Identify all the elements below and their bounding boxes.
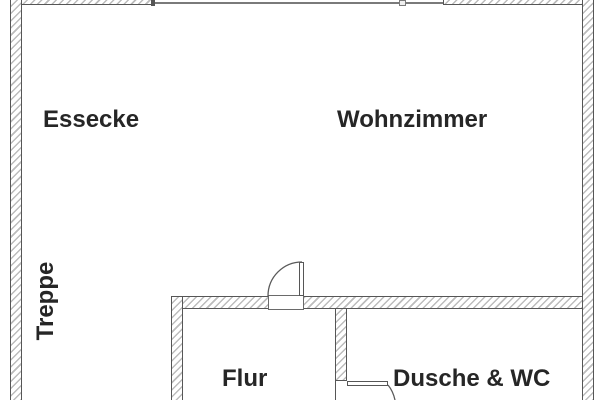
wall-exterior-top-right-segment (443, 0, 582, 5)
room-label-flur: Flur (222, 366, 267, 392)
wall-flur-left (171, 296, 183, 400)
floorplan-canvas: Essecke Wohnzimmer Treppe Flur Dusche & … (0, 0, 600, 400)
room-label-treppe: Treppe (33, 262, 59, 341)
room-label-dusche-wc: Dusche & WC (393, 366, 550, 392)
wall-interior-horizontal (183, 296, 582, 309)
room-label-essecke: Essecke (43, 107, 139, 133)
wall-exterior-top-left-segment (22, 0, 152, 5)
wall-exterior-left (10, 0, 22, 400)
door-flur-arc-icon (268, 262, 302, 296)
wall-flur-dusche-divider (335, 309, 347, 381)
room-label-wohnzimmer: Wohnzimmer (337, 107, 487, 133)
wall-divider-door-jamb (335, 381, 347, 400)
door-dusche-leaf (347, 381, 388, 386)
window-mullion (399, 0, 406, 6)
door-flur-leaf (299, 262, 304, 296)
wall-exterior-right (582, 0, 594, 400)
door-flur-threshold (268, 295, 304, 310)
door-swing-arcs (0, 0, 600, 400)
